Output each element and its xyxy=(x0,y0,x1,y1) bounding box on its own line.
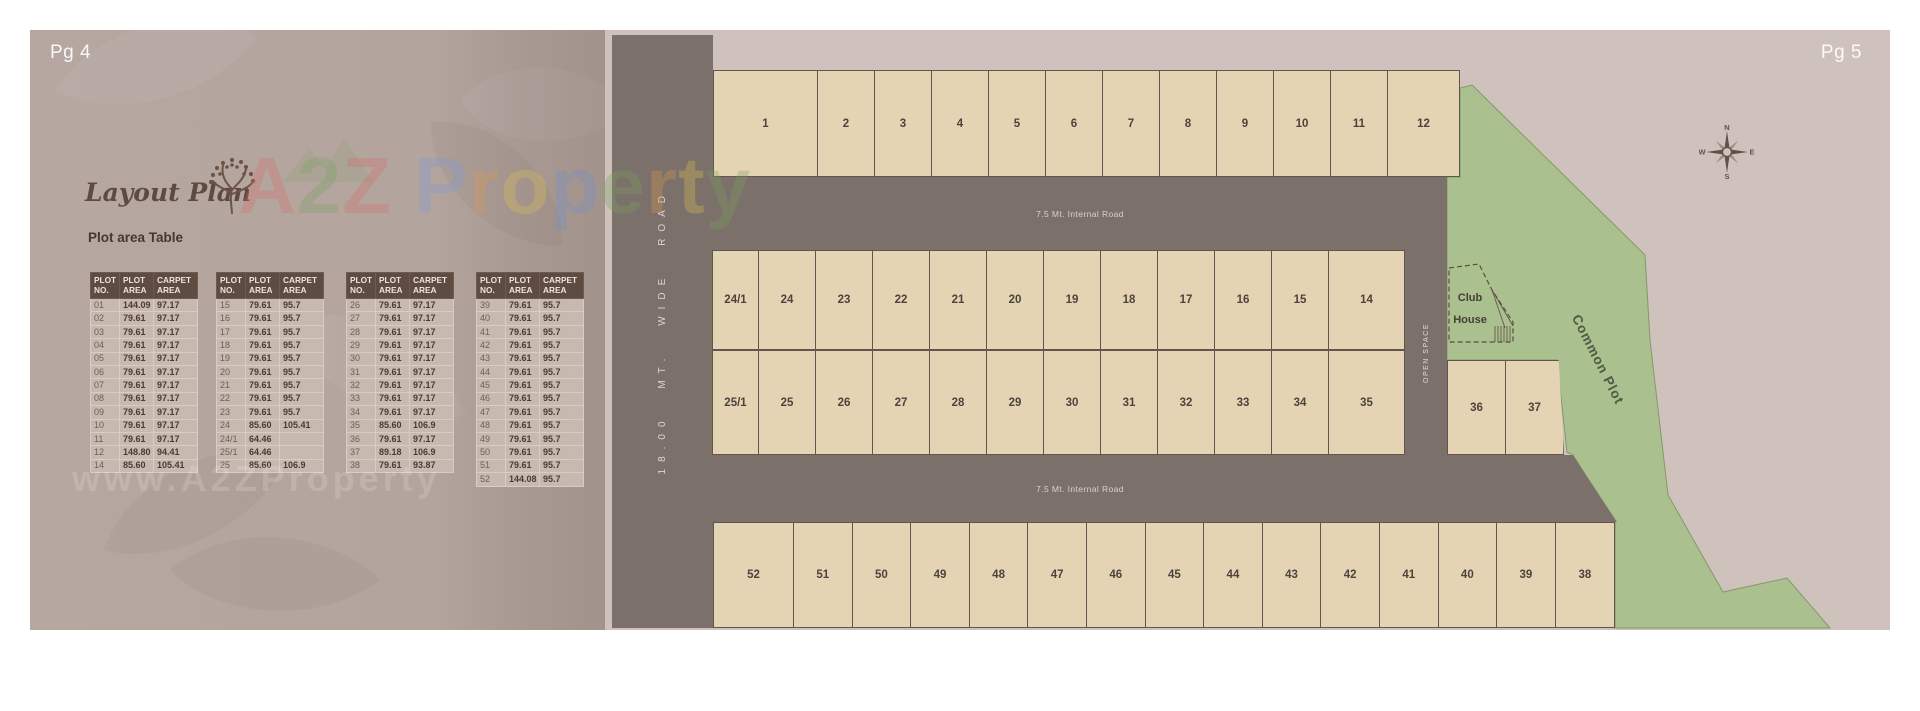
plot-no-cell: 01 xyxy=(91,299,120,312)
table-row: 3279.6197.17 xyxy=(347,379,454,392)
table-row: 4079.6195.7 xyxy=(477,312,584,325)
carpet-area-cell: 97.17 xyxy=(410,406,454,419)
plot-area-cell: 79.61 xyxy=(246,325,280,338)
plot-45: 45 xyxy=(1146,523,1205,627)
table-header-cell: PLOT NO. xyxy=(347,273,376,299)
carpet-area-cell: 97.17 xyxy=(410,366,454,379)
table-row: 2179.6195.7 xyxy=(217,379,324,392)
carpet-area-cell: 95.7 xyxy=(540,406,584,419)
plot-no-cell: 44 xyxy=(477,366,506,379)
plot-no-cell: 08 xyxy=(91,392,120,405)
plot-8: 8 xyxy=(1160,71,1217,176)
plot-no-cell: 22 xyxy=(217,392,246,405)
plot-no-cell: 51 xyxy=(477,459,506,472)
carpet-area-cell xyxy=(280,446,324,459)
plot-area-cell: 79.61 xyxy=(506,325,540,338)
plot-area-cell: 79.61 xyxy=(376,459,410,472)
plot-no-cell: 45 xyxy=(477,379,506,392)
plot-42: 42 xyxy=(1321,523,1380,627)
table-row: 3979.6195.7 xyxy=(477,299,584,312)
table-row: 4179.6195.7 xyxy=(477,325,584,338)
table-row: 3379.6197.17 xyxy=(347,392,454,405)
carpet-area-cell: 95.7 xyxy=(540,473,584,486)
table-row: 2979.6197.17 xyxy=(347,339,454,352)
plot-area-cell: 79.61 xyxy=(120,406,154,419)
plot-48: 48 xyxy=(970,523,1029,627)
plot-19: 19 xyxy=(1044,251,1101,349)
plot-44: 44 xyxy=(1204,523,1263,627)
carpet-area-cell: 97.17 xyxy=(154,432,198,445)
plot-area-cell: 79.61 xyxy=(506,419,540,432)
table-row: 0879.6197.17 xyxy=(91,392,198,405)
plot-46: 46 xyxy=(1087,523,1146,627)
plot-area-table: PLOT NO.PLOT AREACARPET AREA01144.0997.1… xyxy=(30,30,605,630)
table-row: 1779.6195.7 xyxy=(217,325,324,338)
plot-table-group-3: PLOT NO.PLOT AREACARPET AREA2679.6197.17… xyxy=(346,272,454,473)
carpet-area-cell: 105.41 xyxy=(154,459,198,472)
table-row: 2485.60105.41 xyxy=(217,419,324,432)
carpet-area-cell: 95.7 xyxy=(540,325,584,338)
table-row: 3679.6197.17 xyxy=(347,432,454,445)
plot-area-cell: 79.61 xyxy=(376,392,410,405)
table-row: 12148.8094.41 xyxy=(91,446,198,459)
plot-area-cell: 79.61 xyxy=(506,366,540,379)
carpet-area-cell: 95.7 xyxy=(540,392,584,405)
plot-52: 52 xyxy=(714,523,794,627)
table-row: 2079.6195.7 xyxy=(217,366,324,379)
plot-18: 18 xyxy=(1101,251,1158,349)
plot-no-cell: 28 xyxy=(347,325,376,338)
carpet-area-cell: 95.7 xyxy=(540,352,584,365)
carpet-area-cell: 95.7 xyxy=(540,432,584,445)
plot-row-middle-lower: 25/12526272829303132333435 xyxy=(712,350,1405,455)
carpet-area-cell: 97.17 xyxy=(154,339,198,352)
plot-no-cell: 17 xyxy=(217,325,246,338)
table-row: 1485.60105.41 xyxy=(91,459,198,472)
table-header-cell: CARPET AREA xyxy=(410,273,454,299)
carpet-area-cell: 95.7 xyxy=(280,392,324,405)
carpet-area-cell: 97.17 xyxy=(410,352,454,365)
carpet-area-cell: 97.17 xyxy=(154,379,198,392)
table-row: 01144.0997.17 xyxy=(91,299,198,312)
plot-area-cell: 79.61 xyxy=(506,339,540,352)
plot-47: 47 xyxy=(1028,523,1087,627)
carpet-area-cell: 95.7 xyxy=(280,352,324,365)
carpet-area-cell: 97.17 xyxy=(154,299,198,312)
carpet-area-cell: 97.17 xyxy=(154,419,198,432)
carpet-area-cell: 95.7 xyxy=(540,419,584,432)
plot-area-cell: 79.61 xyxy=(246,312,280,325)
plot-area-cell: 79.61 xyxy=(246,392,280,405)
plot-area-cell: 79.61 xyxy=(246,339,280,352)
page-4: Pg 4 Layout Plan Plot area Table PLOT NO… xyxy=(30,30,605,630)
plot-no-cell: 29 xyxy=(347,339,376,352)
plot-no-cell: 12 xyxy=(91,446,120,459)
plot-area-cell: 89.18 xyxy=(376,446,410,459)
table-row: 4279.6195.7 xyxy=(477,339,584,352)
plot-area-cell: 144.09 xyxy=(120,299,154,312)
carpet-area-cell: 95.7 xyxy=(280,339,324,352)
plot-area-cell: 79.61 xyxy=(506,352,540,365)
plot-area-cell: 79.61 xyxy=(120,419,154,432)
compass-east-label: E xyxy=(1749,148,1754,157)
plot-area-cell: 79.61 xyxy=(506,299,540,312)
plot-10: 10 xyxy=(1274,71,1331,176)
carpet-area-cell: 97.17 xyxy=(154,366,198,379)
table-row: 1979.6195.7 xyxy=(217,352,324,365)
plot-5: 5 xyxy=(989,71,1046,176)
plot-no-cell: 31 xyxy=(347,366,376,379)
plot-no-cell: 47 xyxy=(477,406,506,419)
plot-37: 37 xyxy=(1506,361,1563,454)
carpet-area-cell: 95.7 xyxy=(540,339,584,352)
plot-no-cell: 24 xyxy=(217,419,246,432)
carpet-area-cell: 97.17 xyxy=(410,379,454,392)
plot-area-cell: 79.61 xyxy=(376,299,410,312)
plot-no-cell: 05 xyxy=(91,352,120,365)
plot-area-cell: 148.80 xyxy=(120,446,154,459)
plot-no-cell: 03 xyxy=(91,325,120,338)
plot-area-cell: 79.61 xyxy=(120,392,154,405)
plot-no-cell: 19 xyxy=(217,352,246,365)
internal-road-top: 7.5 Mt. Internal Road xyxy=(713,177,1447,250)
plot-no-cell: 38 xyxy=(347,459,376,472)
carpet-area-cell: 95.7 xyxy=(280,325,324,338)
carpet-area-cell: 95.7 xyxy=(280,299,324,312)
table-row: 3585.60106.9 xyxy=(347,419,454,432)
plot-34: 34 xyxy=(1272,351,1329,454)
plot-20: 20 xyxy=(987,251,1044,349)
plot-12: 12 xyxy=(1388,71,1459,176)
carpet-area-cell: 97.17 xyxy=(410,392,454,405)
plot-no-cell: 18 xyxy=(217,339,246,352)
plot-no-cell: 46 xyxy=(477,392,506,405)
plot-36: 36 xyxy=(1448,361,1506,454)
table-header-cell: PLOT NO. xyxy=(477,273,506,299)
club-house-footprint xyxy=(1445,260,1521,350)
table-row: 4879.6195.7 xyxy=(477,419,584,432)
carpet-area-cell: 97.17 xyxy=(154,392,198,405)
plot-41: 41 xyxy=(1380,523,1439,627)
plot-area-cell: 79.61 xyxy=(120,432,154,445)
table-header-cell: CARPET AREA xyxy=(280,273,324,299)
plot-49: 49 xyxy=(911,523,970,627)
plot-no-cell: 30 xyxy=(347,352,376,365)
carpet-area-cell: 97.17 xyxy=(154,312,198,325)
plot-area-cell: 79.61 xyxy=(506,392,540,405)
carpet-area-cell: 97.17 xyxy=(410,325,454,338)
plot-35: 35 xyxy=(1329,351,1404,454)
plot-area-cell: 79.61 xyxy=(120,325,154,338)
plot-27: 27 xyxy=(873,351,930,454)
carpet-area-cell: 94.41 xyxy=(154,446,198,459)
table-row: 5179.6195.7 xyxy=(477,459,584,472)
plot-no-cell: 49 xyxy=(477,432,506,445)
page-5: 18.00 MT. WIDE ROAD 7.5 Mt. Internal Roa… xyxy=(605,30,1890,630)
carpet-area-cell: 95.7 xyxy=(540,299,584,312)
plot-area-cell: 79.61 xyxy=(120,366,154,379)
plot-25-1: 25/1 xyxy=(713,351,759,454)
plot-area-cell: 79.61 xyxy=(376,352,410,365)
plot-row-bottom: 525150494847464544434241403938 xyxy=(713,522,1615,628)
plot-no-cell: 06 xyxy=(91,366,120,379)
plot-50: 50 xyxy=(853,523,912,627)
plot-1: 1 xyxy=(714,71,818,176)
table-row: 0479.6197.17 xyxy=(91,339,198,352)
plot-30: 30 xyxy=(1044,351,1101,454)
plot-no-cell: 07 xyxy=(91,379,120,392)
plot-no-cell: 43 xyxy=(477,352,506,365)
plot-no-cell: 42 xyxy=(477,339,506,352)
carpet-area-cell: 95.7 xyxy=(280,406,324,419)
plot-9: 9 xyxy=(1217,71,1274,176)
carpet-area-cell: 95.7 xyxy=(540,379,584,392)
plot-no-cell: 21 xyxy=(217,379,246,392)
plot-29: 29 xyxy=(987,351,1044,454)
club-house-label-line2: House xyxy=(1441,314,1499,326)
table-row: 2279.6195.7 xyxy=(217,392,324,405)
carpet-area-cell: 95.7 xyxy=(540,446,584,459)
internal-road-top-label: 7.5 Mt. Internal Road xyxy=(1036,209,1124,219)
plot-table-group-2: PLOT NO.PLOT AREACARPET AREA1579.6195.71… xyxy=(216,272,324,473)
table-row: 24/164.46 xyxy=(217,432,324,445)
plot-no-cell: 36 xyxy=(347,432,376,445)
plot-no-cell: 33 xyxy=(347,392,376,405)
common-plot-label: Common Plot xyxy=(1562,298,1634,421)
plot-area-cell: 79.61 xyxy=(506,312,540,325)
table-row: 5079.6195.7 xyxy=(477,446,584,459)
compass-north-label: N xyxy=(1724,124,1729,132)
plot-area-cell: 79.61 xyxy=(506,459,540,472)
plot-40: 40 xyxy=(1439,523,1498,627)
plot-24: 24 xyxy=(759,251,816,349)
plot-area-cell: 79.61 xyxy=(246,379,280,392)
plot-22: 22 xyxy=(873,251,930,349)
carpet-area-cell: 97.17 xyxy=(154,406,198,419)
plot-no-cell: 35 xyxy=(347,419,376,432)
plot-25: 25 xyxy=(759,351,816,454)
plot-3: 3 xyxy=(875,71,932,176)
internal-road-bottom-label: 7.5 Mt. Internal Road xyxy=(1036,484,1124,494)
table-header-cell: PLOT NO. xyxy=(91,273,120,299)
plot-pair-36-37: 36 37 xyxy=(1447,360,1564,455)
plot-no-cell: 26 xyxy=(347,299,376,312)
plot-no-cell: 09 xyxy=(91,406,120,419)
plot-11: 11 xyxy=(1331,71,1388,176)
table-row: 3479.6197.17 xyxy=(347,406,454,419)
table-row: 1879.6195.7 xyxy=(217,339,324,352)
carpet-area-cell xyxy=(280,432,324,445)
table-row: 0379.6197.17 xyxy=(91,325,198,338)
carpet-area-cell: 105.41 xyxy=(280,419,324,432)
plot-area-cell: 79.61 xyxy=(376,339,410,352)
plot-21: 21 xyxy=(930,251,987,349)
plot-no-cell: 15 xyxy=(217,299,246,312)
plot-area-cell: 79.61 xyxy=(506,406,540,419)
plot-area-cell: 79.61 xyxy=(120,339,154,352)
plot-43: 43 xyxy=(1263,523,1322,627)
table-row: 25/164.46 xyxy=(217,446,324,459)
plot-area-cell: 85.60 xyxy=(246,419,280,432)
table-header-cell: CARPET AREA xyxy=(540,273,584,299)
carpet-area-cell: 97.17 xyxy=(410,432,454,445)
plot-area-cell: 79.61 xyxy=(376,379,410,392)
internal-road-bottom: 7.5 Mt. Internal Road xyxy=(713,455,1447,522)
plot-area-cell: 79.61 xyxy=(376,312,410,325)
plot-17: 17 xyxy=(1158,251,1215,349)
table-header-cell: PLOT AREA xyxy=(376,273,410,299)
plot-no-cell: 23 xyxy=(217,406,246,419)
table-row: 0279.6197.17 xyxy=(91,312,198,325)
brochure-spread: Pg 4 Layout Plan Plot area Table PLOT NO… xyxy=(0,0,1920,711)
plot-39: 39 xyxy=(1497,523,1556,627)
carpet-area-cell: 95.7 xyxy=(540,312,584,325)
plot-16: 16 xyxy=(1215,251,1272,349)
table-header-cell: PLOT NO. xyxy=(217,273,246,299)
plot-area-cell: 79.61 xyxy=(246,352,280,365)
table-row: 4679.6195.7 xyxy=(477,392,584,405)
plot-area-cell: 85.60 xyxy=(246,459,280,472)
plot-no-cell: 48 xyxy=(477,419,506,432)
table-row: 2779.6197.17 xyxy=(347,312,454,325)
table-row: 4779.6195.7 xyxy=(477,406,584,419)
plot-no-cell: 20 xyxy=(217,366,246,379)
plot-no-cell: 27 xyxy=(347,312,376,325)
table-row: 0979.6197.17 xyxy=(91,406,198,419)
plot-table-group-1: PLOT NO.PLOT AREACARPET AREA01144.0997.1… xyxy=(90,272,198,473)
plot-area-cell: 79.61 xyxy=(376,325,410,338)
table-row: 2879.6197.17 xyxy=(347,325,454,338)
compass-west-label: W xyxy=(1699,148,1706,157)
table-row: 0579.6197.17 xyxy=(91,352,198,365)
plot-38: 38 xyxy=(1556,523,1614,627)
table-row: 2679.6197.17 xyxy=(347,299,454,312)
table-row: 3879.6193.87 xyxy=(347,459,454,472)
table-header-cell: CARPET AREA xyxy=(154,273,198,299)
table-row: 2379.6195.7 xyxy=(217,406,324,419)
plot-area-cell: 85.60 xyxy=(120,459,154,472)
plot-area-cell: 85.60 xyxy=(376,419,410,432)
carpet-area-cell: 95.7 xyxy=(280,379,324,392)
plot-31: 31 xyxy=(1101,351,1158,454)
plot-no-cell: 14 xyxy=(91,459,120,472)
carpet-area-cell: 95.7 xyxy=(540,459,584,472)
table-header-cell: PLOT AREA xyxy=(246,273,280,299)
plot-no-cell: 25 xyxy=(217,459,246,472)
table-row: 3079.6197.17 xyxy=(347,352,454,365)
wide-road-strip: 18.00 MT. WIDE ROAD xyxy=(612,35,713,628)
carpet-area-cell: 95.7 xyxy=(540,366,584,379)
carpet-area-cell: 95.7 xyxy=(280,366,324,379)
plot-area-cell: 79.61 xyxy=(506,446,540,459)
plot-area-cell: 79.61 xyxy=(246,366,280,379)
carpet-area-cell: 97.17 xyxy=(154,352,198,365)
open-space-label: OPEN SPACE xyxy=(1423,323,1430,383)
plot-area-cell: 79.61 xyxy=(120,312,154,325)
table-row: 3179.6197.17 xyxy=(347,366,454,379)
table-header-cell: PLOT AREA xyxy=(120,273,154,299)
carpet-area-cell: 97.17 xyxy=(410,339,454,352)
carpet-area-cell: 97.17 xyxy=(410,312,454,325)
plot-2: 2 xyxy=(818,71,875,176)
carpet-area-cell: 97.17 xyxy=(410,299,454,312)
compass-rose-icon: N E S W xyxy=(1699,124,1755,180)
plot-no-cell: 37 xyxy=(347,446,376,459)
plot-no-cell: 25/1 xyxy=(217,446,246,459)
table-row: 0679.6197.17 xyxy=(91,366,198,379)
table-row: 4379.6195.7 xyxy=(477,352,584,365)
plot-no-cell: 02 xyxy=(91,312,120,325)
plot-area-cell: 64.46 xyxy=(246,432,280,445)
carpet-area-cell: 106.9 xyxy=(410,446,454,459)
plot-area-cell: 79.61 xyxy=(376,366,410,379)
plot-area-cell: 79.61 xyxy=(246,406,280,419)
plot-no-cell: 50 xyxy=(477,446,506,459)
plot-table-group-4: PLOT NO.PLOT AREACARPET AREA3979.6195.74… xyxy=(476,272,584,487)
page-number-right: Pg 5 xyxy=(1821,42,1862,64)
table-row: 1079.6197.17 xyxy=(91,419,198,432)
plot-row-middle-upper: 24/12423222120191817161514 xyxy=(712,250,1405,350)
plot-area-cell: 64.46 xyxy=(246,446,280,459)
plot-no-cell: 41 xyxy=(477,325,506,338)
table-row: 4579.6195.7 xyxy=(477,379,584,392)
plot-no-cell: 24/1 xyxy=(217,432,246,445)
wide-road-label: 18.00 MT. WIDE ROAD xyxy=(657,189,668,474)
carpet-area-cell: 97.17 xyxy=(154,325,198,338)
table-row: 1579.6195.7 xyxy=(217,299,324,312)
plot-4: 4 xyxy=(932,71,989,176)
plot-area-cell: 79.61 xyxy=(120,379,154,392)
table-row: 4979.6195.7 xyxy=(477,432,584,445)
club-house-label-line1: Club xyxy=(1441,292,1499,304)
plot-area-cell: 79.61 xyxy=(376,406,410,419)
plot-24-1: 24/1 xyxy=(713,251,759,349)
plot-area-cell: 79.61 xyxy=(246,299,280,312)
plot-26: 26 xyxy=(816,351,873,454)
carpet-area-cell: 95.7 xyxy=(280,312,324,325)
plot-area-cell: 79.61 xyxy=(506,432,540,445)
table-row: 3789.18106.9 xyxy=(347,446,454,459)
plot-area-cell: 144.08 xyxy=(506,473,540,486)
table-row: 4479.6195.7 xyxy=(477,366,584,379)
table-row: 1179.6197.17 xyxy=(91,432,198,445)
plot-area-cell: 79.61 xyxy=(120,352,154,365)
table-header-cell: PLOT AREA xyxy=(506,273,540,299)
plot-no-cell: 52 xyxy=(477,473,506,486)
carpet-area-cell: 106.9 xyxy=(410,419,454,432)
plot-area-cell: 79.61 xyxy=(506,379,540,392)
plot-no-cell: 04 xyxy=(91,339,120,352)
plot-28: 28 xyxy=(930,351,987,454)
carpet-area-cell: 93.87 xyxy=(410,459,454,472)
plot-no-cell: 32 xyxy=(347,379,376,392)
plot-14: 14 xyxy=(1329,251,1404,349)
plot-51: 51 xyxy=(794,523,853,627)
compass-south-label: S xyxy=(1724,172,1729,180)
plot-no-cell: 10 xyxy=(91,419,120,432)
plot-23: 23 xyxy=(816,251,873,349)
plot-row-top: 123456789101112 xyxy=(713,70,1460,177)
open-space-strip: OPEN SPACE xyxy=(1405,250,1447,455)
plot-area-cell: 79.61 xyxy=(376,432,410,445)
plot-15: 15 xyxy=(1272,251,1329,349)
plot-no-cell: 34 xyxy=(347,406,376,419)
internal-road-bottom-extension xyxy=(1447,455,1617,522)
plot-7: 7 xyxy=(1103,71,1160,176)
carpet-area-cell: 106.9 xyxy=(280,459,324,472)
plot-6: 6 xyxy=(1046,71,1103,176)
table-row: 0779.6197.17 xyxy=(91,379,198,392)
